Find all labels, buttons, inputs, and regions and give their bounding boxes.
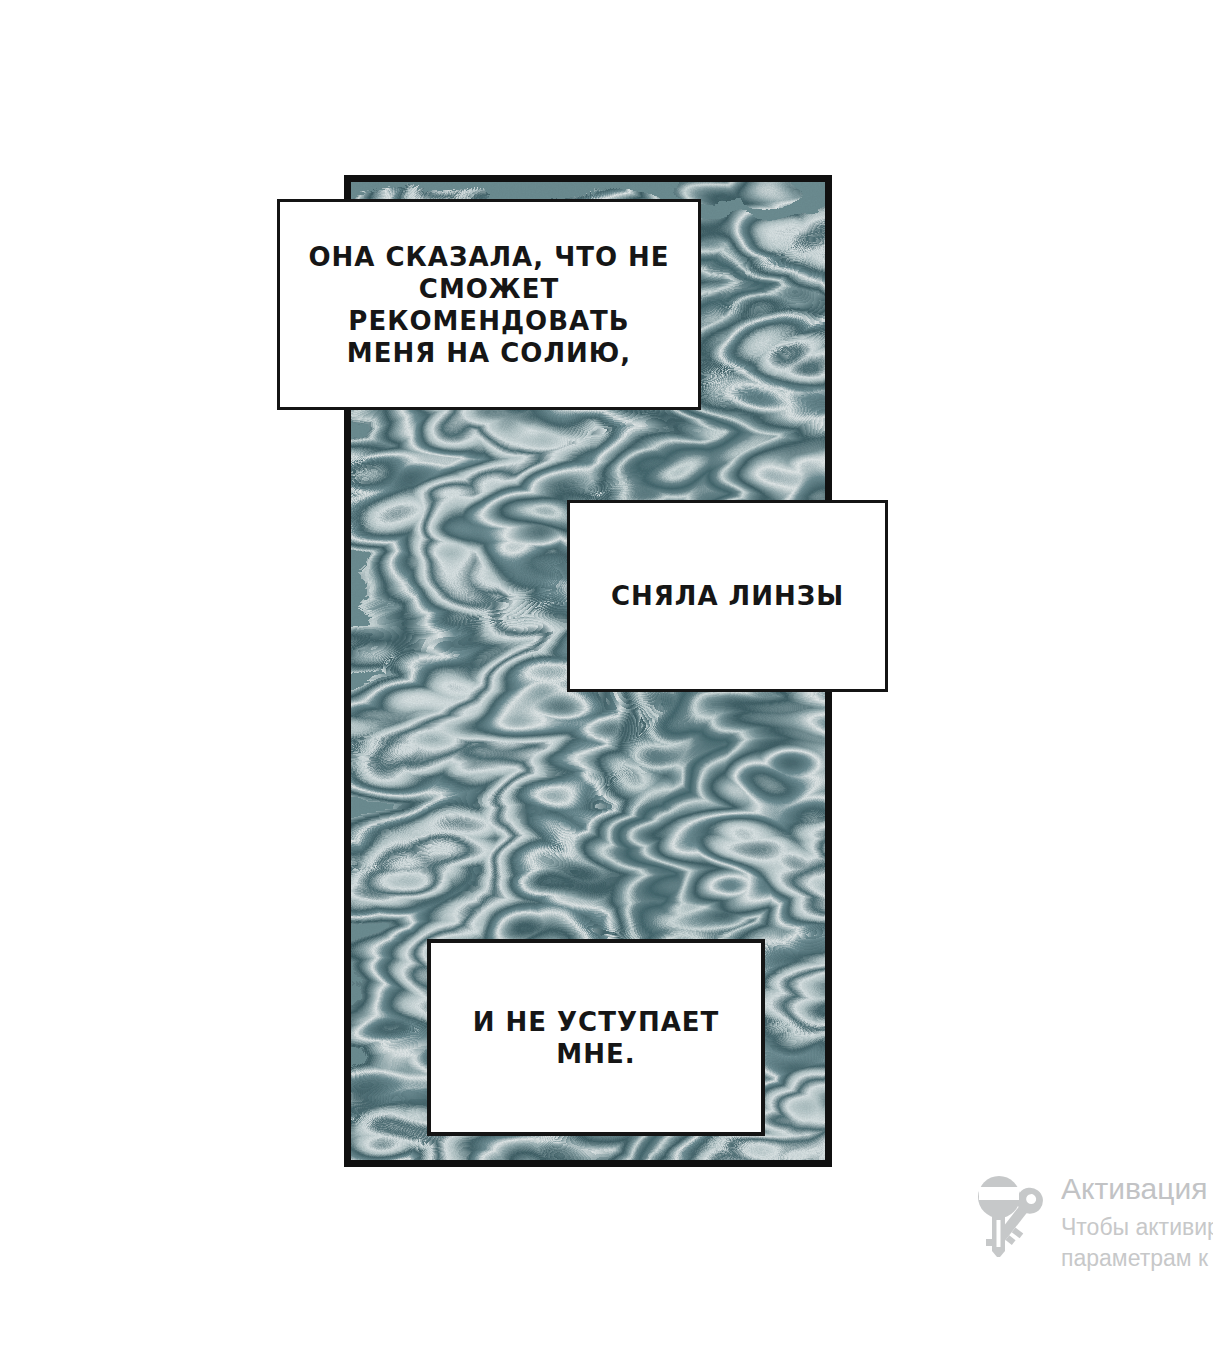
watermark-text: Активация Чтобы активир параметрам к <box>1061 1171 1213 1274</box>
caption-line: СМОЖЕТ РЕКОМЕНДОВАТЬ <box>280 273 698 337</box>
caption-box-1: ОНА СКАЗАЛА, ЧТО НЕ СМОЖЕТ РЕКОМЕНДОВАТЬ… <box>277 199 701 410</box>
watermark-body-line-1: Чтобы активир <box>1061 1212 1213 1243</box>
caption-text-1: ОНА СКАЗАЛА, ЧТО НЕ СМОЖЕТ РЕКОМЕНДОВАТЬ… <box>280 241 698 369</box>
caption-box-2: СНЯЛА ЛИНЗЫ <box>567 500 888 692</box>
caption-line: ОНА СКАЗАЛА, ЧТО НЕ <box>280 241 698 273</box>
caption-line: СНЯЛА ЛИНЗЫ <box>611 580 844 612</box>
watermark-title: Активация <box>1061 1171 1213 1207</box>
caption-box-3: И НЕ УСТУПАЕТ МНЕ. <box>427 939 765 1136</box>
caption-text-3: И НЕ УСТУПАЕТ МНЕ. <box>431 1006 761 1070</box>
windows-activation-watermark: Активация Чтобы активир параметрам к <box>973 1171 1213 1274</box>
comic-reader-page: ОНА СКАЗАЛА, ЧТО НЕ СМОЖЕТ РЕКОМЕНДОВАТЬ… <box>0 0 1213 1351</box>
watermark-body-line-2: параметрам к <box>1061 1243 1213 1274</box>
caption-line: И НЕ УСТУПАЕТ МНЕ. <box>431 1006 761 1070</box>
caption-line: МЕНЯ НА СОЛИЮ, <box>280 337 698 369</box>
keys-icon <box>973 1173 1055 1257</box>
caption-text-2: СНЯЛА ЛИНЗЫ <box>611 580 844 612</box>
